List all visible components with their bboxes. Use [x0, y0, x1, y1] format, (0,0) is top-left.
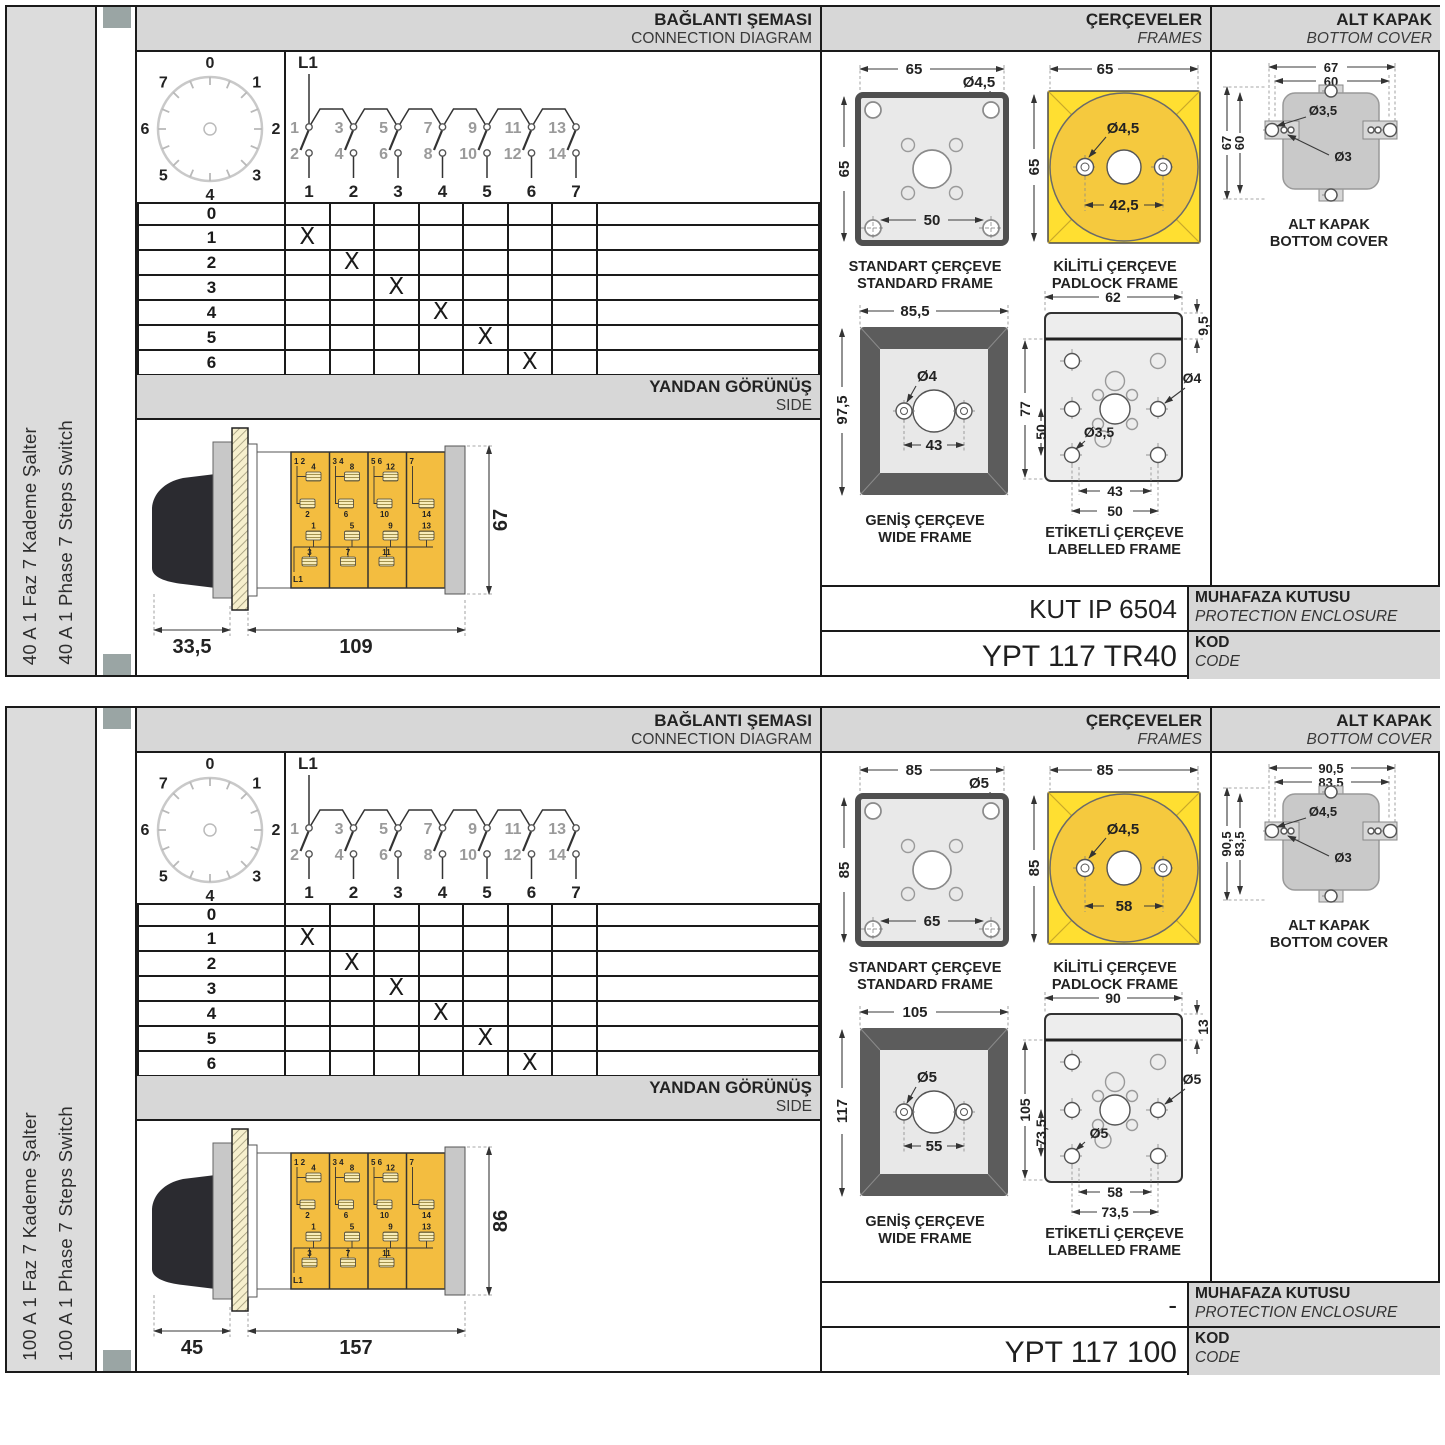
svg-text:6: 6: [527, 883, 536, 902]
position-dial-cell: 0 1 2 3 4 5 6 7: [137, 52, 286, 202]
svg-text:55: 55: [926, 1138, 943, 1155]
svg-text:5: 5: [379, 120, 388, 137]
svg-text:14: 14: [422, 1211, 431, 1220]
svg-text:7: 7: [571, 883, 580, 902]
svg-text:6: 6: [141, 822, 150, 839]
svg-text:14: 14: [548, 847, 566, 864]
svg-text:Ø4,5: Ø4,5: [1107, 120, 1140, 137]
svg-text:65: 65: [1097, 61, 1114, 78]
svg-text:2: 2: [272, 822, 281, 839]
step-contact-table: 0 1X 2X 3X 4X 5X 6X 7X: [137, 202, 820, 401]
binder-mark-bottom: [103, 654, 131, 675]
svg-text:3: 3: [252, 168, 261, 185]
svg-text:Ø5: Ø5: [1090, 1125, 1109, 1141]
side-view-drawing: 1 2 3 4 5 6 7 4 8 12 2 6 10 14 1 5 9 13 …: [137, 1121, 820, 1375]
svg-text:0: 0: [206, 55, 215, 72]
frames-header: ÇERÇEVELER FRAMES: [822, 7, 1210, 52]
svg-text:90: 90: [1105, 990, 1121, 1006]
svg-text:L1: L1: [298, 754, 318, 773]
svg-text:4: 4: [335, 146, 344, 163]
matrix-cell: [285, 203, 330, 225]
content-area: BAĞLANTI ŞEMASI CONNECTION DIAGRAM ÇERÇE…: [135, 708, 1438, 1371]
svg-text:5: 5: [159, 168, 168, 185]
contact-diagram: L1 1 3 5: [286, 753, 820, 903]
protection-enclosure-row: KUT IP 6504 MUHAFAZA KUTUSU PROTECTION E…: [822, 585, 1440, 630]
svg-text:43: 43: [926, 437, 943, 454]
end-plate: [445, 446, 465, 594]
svg-text:7: 7: [159, 775, 168, 792]
code-label: KOD CODE: [1187, 1328, 1440, 1375]
svg-text:65: 65: [1026, 159, 1043, 176]
sidebar-label-en: 100 A 1 Phase 7 Steps Switch: [55, 1106, 77, 1361]
svg-text:5: 5: [350, 522, 355, 531]
svg-text:0: 0: [206, 756, 215, 773]
svg-text:12: 12: [386, 1164, 395, 1173]
padlock-frame-figure: 65 65 Ø4,5 42,5: [1022, 55, 1208, 259]
side-view-cell: 1 2 3 4 5 6 7 4 8 12 2 6 10 14 1 5 9 13 …: [137, 420, 820, 679]
enclosure-label: MUHAFAZA KUTUSU PROTECTION ENCLOSURE: [1187, 1283, 1440, 1326]
svg-text:13: 13: [422, 1223, 431, 1232]
labelled-frame-caption: ETİKETLİ ÇERÇEVE LABELLED FRAME: [1017, 525, 1212, 560]
svg-text:11: 11: [382, 548, 391, 557]
bottom-cover-figure: 67 60 67 60 Ø3,5 Ø3: [1219, 59, 1439, 209]
wide-frame-caption: GENİŞ ÇERÇEVE WIDE FRAME: [830, 513, 1020, 548]
position-dial: 0 1 2 3 4 5 6 7: [137, 52, 284, 202]
svg-text:67: 67: [1324, 60, 1338, 75]
standard-frame-figure: 65 Ø4,5 65 50: [832, 55, 1018, 255]
mounting-plate: [232, 1129, 248, 1311]
svg-text:8: 8: [424, 146, 433, 163]
svg-text:9: 9: [468, 120, 477, 137]
svg-text:58: 58: [1116, 898, 1133, 915]
step-row: 1X: [138, 926, 819, 951]
connection-diagram-header: BAĞLANTI ŞEMASI CONNECTION DIAGRAM: [137, 7, 820, 52]
svg-text:9: 9: [468, 821, 477, 838]
svg-text:9,5: 9,5: [1195, 316, 1211, 336]
svg-text:105: 105: [902, 1004, 927, 1021]
svg-text:1 2: 1 2: [294, 457, 306, 466]
svg-text:11: 11: [505, 821, 522, 838]
column-divider: [820, 708, 822, 1371]
svg-text:L1: L1: [298, 53, 318, 72]
side-view-header: YANDAN GÖRÜNÜŞ SIDE: [137, 1076, 820, 1121]
svg-text:1: 1: [304, 883, 313, 902]
svg-text:11: 11: [505, 120, 522, 137]
code-value: YPT 117 100: [822, 1328, 1187, 1375]
svg-text:Ø5: Ø5: [1183, 1071, 1202, 1087]
svg-text:8: 8: [350, 463, 355, 472]
svg-text:5 6: 5 6: [371, 1158, 383, 1167]
svg-text:4: 4: [438, 883, 448, 902]
svg-text:5: 5: [482, 182, 491, 201]
step-row: 0: [138, 904, 819, 926]
svg-text:73,5: 73,5: [1033, 1119, 1049, 1146]
content-area: BAĞLANTI ŞEMASI CONNECTION DIAGRAM ÇERÇE…: [135, 7, 1438, 675]
svg-text:1: 1: [252, 74, 261, 91]
labelled-frame-figure: 62 9,5 77 50 Ø4 Ø3,5: [1015, 285, 1212, 523]
svg-text:5: 5: [379, 821, 388, 838]
svg-text:3: 3: [307, 548, 312, 557]
svg-text:L1: L1: [293, 574, 303, 584]
standard-frame-caption: STANDART ÇERÇEVE STANDARD FRAME: [830, 960, 1020, 995]
step-label: 0: [138, 203, 285, 225]
svg-text:7: 7: [346, 548, 351, 557]
svg-text:1 2: 1 2: [294, 1158, 306, 1167]
svg-text:6: 6: [379, 847, 388, 864]
side-view-header: YANDAN GÖRÜNÜŞ SIDE: [137, 375, 820, 420]
svg-text:5 6: 5 6: [371, 457, 383, 466]
svg-text:13: 13: [1195, 1019, 1211, 1035]
svg-text:4: 4: [311, 1164, 316, 1173]
step-row: 6X: [138, 350, 819, 375]
svg-text:5: 5: [350, 1223, 355, 1232]
code-label: KOD CODE: [1187, 632, 1440, 679]
standard-frame-caption: STANDART ÇERÇEVE STANDARD FRAME: [830, 259, 1020, 294]
svg-text:6: 6: [141, 121, 150, 138]
svg-text:1: 1: [304, 182, 313, 201]
wide-frame-figure: 85,5 97,5 Ø4 43: [832, 299, 1018, 511]
svg-text:14: 14: [422, 510, 431, 519]
svg-text:7: 7: [410, 457, 415, 466]
bottom-cover-figure: 90,5 83,5 90,5 83,5 Ø4,5 Ø3: [1219, 760, 1439, 910]
step-row: 3X: [138, 275, 819, 300]
step-row: 2X: [138, 250, 819, 275]
svg-text:50: 50: [924, 212, 941, 229]
contact-diagram-cell: L1 1 3 5: [286, 753, 820, 903]
wide-frame-caption: GENİŞ ÇERÇEVE WIDE FRAME: [830, 1214, 1020, 1249]
step-row: 4X: [138, 1001, 819, 1026]
svg-text:7: 7: [424, 821, 433, 838]
svg-text:6: 6: [379, 146, 388, 163]
svg-text:3: 3: [393, 883, 402, 902]
svg-text:9: 9: [388, 1223, 393, 1232]
svg-text:7: 7: [571, 182, 580, 201]
svg-text:10: 10: [380, 1211, 389, 1220]
svg-text:90,5: 90,5: [1318, 761, 1343, 776]
step-row: 0: [138, 203, 819, 225]
svg-text:43: 43: [1107, 483, 1123, 499]
svg-text:10: 10: [459, 847, 477, 864]
svg-text:3: 3: [335, 821, 344, 838]
header-title-en: CONNECTION DIAGRAM: [137, 30, 812, 48]
svg-text:11: 11: [382, 1249, 391, 1258]
end-plate: [445, 1147, 465, 1295]
svg-text:85: 85: [836, 862, 853, 879]
svg-text:Ø3: Ø3: [1334, 850, 1351, 865]
padlock-frame-figure: 85 85 Ø4,5 58: [1022, 756, 1208, 960]
binder-mark-bottom: [103, 1350, 131, 1371]
svg-text:Ø4: Ø4: [1183, 370, 1202, 386]
svg-text:5: 5: [159, 869, 168, 886]
sidebar-label-tr: 40 A 1 Faz 7 Kademe Şalter: [19, 427, 41, 665]
svg-text:1: 1: [290, 821, 299, 838]
svg-text:4: 4: [206, 187, 215, 202]
svg-text:13: 13: [548, 120, 566, 137]
svg-text:Ø4,5: Ø4,5: [1107, 821, 1140, 838]
svg-text:77: 77: [1017, 401, 1033, 417]
svg-text:2: 2: [349, 182, 358, 201]
svg-text:1: 1: [311, 522, 316, 531]
step-row: 4X: [138, 300, 819, 325]
svg-text:10: 10: [380, 510, 389, 519]
svg-text:3: 3: [335, 120, 344, 137]
side-view-drawing: 1 2 3 4 5 6 7 4 8 12 2 6 10 14 1 5 9 13 …: [137, 420, 820, 679]
svg-text:Ø4,5: Ø4,5: [963, 74, 996, 91]
svg-text:58: 58: [1107, 1184, 1123, 1200]
bottom-cover-header: ALT KAPAK BOTTOM COVER: [1212, 708, 1440, 753]
switch-section-100a: 100 A 1 Faz 7 Kademe Şalter 100 A 1 Phas…: [5, 706, 1440, 1373]
switch-section-40a: 40 A 1 Faz 7 Kademe Şalter 40 A 1 Phase …: [5, 5, 1440, 677]
dim-depth: 45: [181, 1337, 203, 1359]
svg-text:4: 4: [311, 463, 316, 472]
svg-text:6: 6: [344, 510, 349, 519]
column-divider: [820, 7, 822, 675]
dim-length: 109: [339, 636, 372, 658]
svg-text:2: 2: [305, 510, 310, 519]
side-view-cell: 1 2 3 4 5 6 7 4 8 12 2 6 10 14 1 5 9 13 …: [137, 1121, 820, 1375]
svg-text:13: 13: [548, 821, 566, 838]
svg-text:85: 85: [1026, 860, 1043, 877]
labelled-frame-figure: 90 13 105 73,5 Ø5 Ø5: [1015, 986, 1212, 1224]
step-row: 5X: [138, 1026, 819, 1051]
svg-text:1: 1: [311, 1223, 316, 1232]
svg-text:85,5: 85,5: [900, 303, 929, 320]
svg-text:4: 4: [335, 847, 344, 864]
standard-frame-figure: 85 Ø5 85 65: [832, 756, 1018, 956]
step-row: 6X: [138, 1051, 819, 1076]
svg-text:12: 12: [504, 146, 522, 163]
bottom-cover-caption: ALT KAPAK BOTTOM COVER: [1219, 217, 1439, 252]
svg-text:Ø3,5: Ø3,5: [1309, 103, 1337, 118]
svg-text:50: 50: [1033, 424, 1049, 440]
sidebar: 40 A 1 Faz 7 Kademe Şalter 40 A 1 Phase …: [7, 7, 97, 675]
svg-text:83,5: 83,5: [1232, 831, 1247, 856]
svg-text:13: 13: [422, 522, 431, 531]
binder-mark-top: [103, 7, 131, 28]
svg-text:60: 60: [1232, 136, 1247, 150]
svg-text:2: 2: [290, 847, 299, 864]
svg-text:14: 14: [548, 146, 566, 163]
protection-enclosure-row: - MUHAFAZA KUTUSU PROTECTION ENCLOSURE: [822, 1281, 1440, 1326]
enclosure-label: MUHAFAZA KUTUSU PROTECTION ENCLOSURE: [1187, 587, 1440, 630]
svg-text:6: 6: [344, 1211, 349, 1220]
code-row: YPT 117 100 KOD CODE: [822, 1326, 1440, 1375]
step-row: 3X: [138, 976, 819, 1001]
svg-text:4: 4: [206, 888, 215, 903]
svg-text:73,5: 73,5: [1101, 1204, 1128, 1220]
header-title-tr: BAĞLANTI ŞEMASI: [137, 10, 812, 30]
svg-text:97,5: 97,5: [834, 395, 851, 424]
svg-text:Ø4,5: Ø4,5: [1309, 804, 1337, 819]
svg-text:117: 117: [834, 1099, 851, 1123]
binder-mark-top: [103, 708, 131, 729]
bottom-cover-caption: ALT KAPAK BOTTOM COVER: [1219, 918, 1439, 953]
svg-text:4: 4: [438, 182, 448, 201]
svg-text:Ø3,5: Ø3,5: [1084, 424, 1115, 440]
svg-text:Ø5: Ø5: [969, 775, 989, 792]
svg-text:85: 85: [1097, 762, 1114, 779]
svg-text:42,5: 42,5: [1109, 197, 1138, 214]
svg-text:10: 10: [459, 146, 477, 163]
svg-text:2: 2: [305, 1211, 310, 1220]
svg-text:2: 2: [349, 883, 358, 902]
svg-text:3: 3: [252, 869, 261, 886]
svg-text:L1: L1: [293, 1275, 303, 1285]
svg-text:7: 7: [346, 1249, 351, 1258]
svg-text:65: 65: [906, 61, 923, 78]
svg-text:3: 3: [393, 182, 402, 201]
svg-text:1: 1: [252, 775, 261, 792]
svg-text:3: 3: [307, 1249, 312, 1258]
svg-text:9: 9: [388, 522, 393, 531]
svg-text:65: 65: [836, 161, 853, 178]
svg-text:8: 8: [424, 847, 433, 864]
svg-text:Ø5: Ø5: [917, 1069, 937, 1086]
step-row: 2X: [138, 951, 819, 976]
svg-text:7: 7: [159, 74, 168, 91]
svg-text:2: 2: [272, 121, 281, 138]
svg-text:65: 65: [924, 913, 941, 930]
position-dial-cell: 0 1 2 3 4 5 6 7: [137, 753, 286, 903]
svg-text:62: 62: [1105, 289, 1121, 305]
dim-height: 67: [490, 509, 512, 531]
svg-text:2: 2: [290, 146, 299, 163]
code-value: YPT 117 TR40: [822, 632, 1187, 679]
contact-diagram: L1 1 3 5: [286, 52, 820, 202]
contact-diagram-cell: L1 1 3 5: [286, 52, 820, 202]
dim-length: 157: [339, 1337, 372, 1359]
step-row: 5X: [138, 325, 819, 350]
code-row: YPT 117 TR40 KOD CODE: [822, 630, 1440, 679]
dim-depth: 33,5: [173, 636, 212, 658]
svg-text:85: 85: [906, 762, 923, 779]
mounting-plate: [232, 428, 248, 610]
svg-text:6: 6: [527, 182, 536, 201]
svg-text:5: 5: [482, 883, 491, 902]
svg-text:12: 12: [504, 847, 522, 864]
svg-text:1: 1: [290, 120, 299, 137]
step-row: 1X: [138, 225, 819, 250]
enclosure-value: KUT IP 6504: [822, 587, 1187, 630]
svg-text:Ø4: Ø4: [917, 368, 938, 385]
wide-frame-figure: 105 117 Ø5 55: [832, 1000, 1018, 1212]
position-dial: 0 1 2 3 4 5 6 7: [137, 753, 284, 903]
bottom-cover-header: ALT KAPAK BOTTOM COVER: [1212, 7, 1440, 52]
frames-header: ÇERÇEVELER FRAMES: [822, 708, 1210, 753]
svg-text:Ø3: Ø3: [1334, 149, 1351, 164]
dim-height: 86: [490, 1210, 512, 1232]
svg-text:105: 105: [1017, 1098, 1033, 1122]
connection-diagram-header: BAĞLANTI ŞEMASI CONNECTION DIAGRAM: [137, 708, 820, 753]
step-contact-table: 0 1X 2X 3X 4X 5X 6X 7X: [137, 903, 820, 1102]
svg-text:3 4: 3 4: [333, 457, 345, 466]
svg-text:7: 7: [424, 120, 433, 137]
svg-text:7: 7: [410, 1158, 415, 1167]
sidebar-label-en: 40 A 1 Phase 7 Steps Switch: [55, 420, 77, 665]
svg-text:3 4: 3 4: [333, 1158, 345, 1167]
svg-text:12: 12: [386, 463, 395, 472]
sidebar-label-tr: 100 A 1 Faz 7 Kademe Şalter: [19, 1112, 41, 1361]
labelled-frame-caption: ETİKETLİ ÇERÇEVE LABELLED FRAME: [1017, 1226, 1212, 1261]
svg-text:50: 50: [1107, 503, 1123, 519]
sidebar: 100 A 1 Faz 7 Kademe Şalter 100 A 1 Phas…: [7, 708, 97, 1371]
enclosure-value: -: [822, 1283, 1187, 1326]
svg-text:8: 8: [350, 1164, 355, 1173]
